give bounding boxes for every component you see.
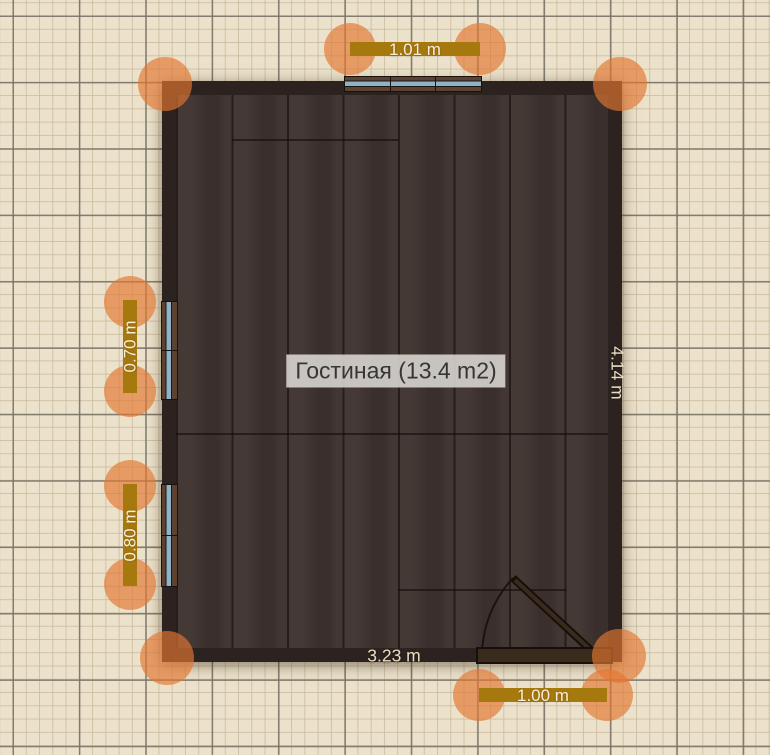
dimension-door[interactable]: 1.00 m [479, 688, 607, 702]
dimension-label: 1.00 m [517, 687, 569, 704]
window-left-upper[interactable] [161, 301, 178, 400]
dimension-left-lower-window[interactable]: 0.80 m [123, 484, 137, 586]
corner-handle-top-right[interactable] [593, 57, 647, 111]
wall-length-label-right: 4.14 m [607, 346, 628, 400]
window-pane [435, 77, 481, 91]
corner-handle-top-left[interactable] [138, 57, 192, 111]
window-pane [390, 77, 436, 91]
window-left-lower[interactable] [161, 484, 178, 587]
window-pane [345, 77, 390, 91]
window-pane [162, 535, 177, 586]
dimension-left-upper-window[interactable]: 0.70 m [123, 300, 137, 393]
window-top[interactable] [344, 76, 482, 92]
dimension-top-window[interactable]: 1.01 m [350, 42, 480, 56]
plank-seam [232, 139, 398, 141]
window-pane [162, 485, 177, 535]
door-leaf-face [515, 580, 595, 654]
wall-length-label-bottom: 3.23 m [367, 646, 421, 667]
room-name-label: Гостиная (13.4 m2) [286, 355, 505, 388]
window-pane [162, 350, 177, 399]
dimension-label: 1.01 m [389, 41, 441, 58]
dimension-label: 0.70 m [122, 321, 139, 373]
door-swing-arc [482, 578, 513, 656]
plank-seam [176, 433, 608, 435]
corner-handle-bottom-left[interactable] [140, 631, 194, 685]
floor-plan-canvas: 1.01 m 0.70 m 0.80 m 1.00 m 3.23 m 4.14 … [0, 0, 770, 755]
dimension-label: 0.80 m [122, 509, 139, 561]
window-pane [162, 302, 177, 350]
